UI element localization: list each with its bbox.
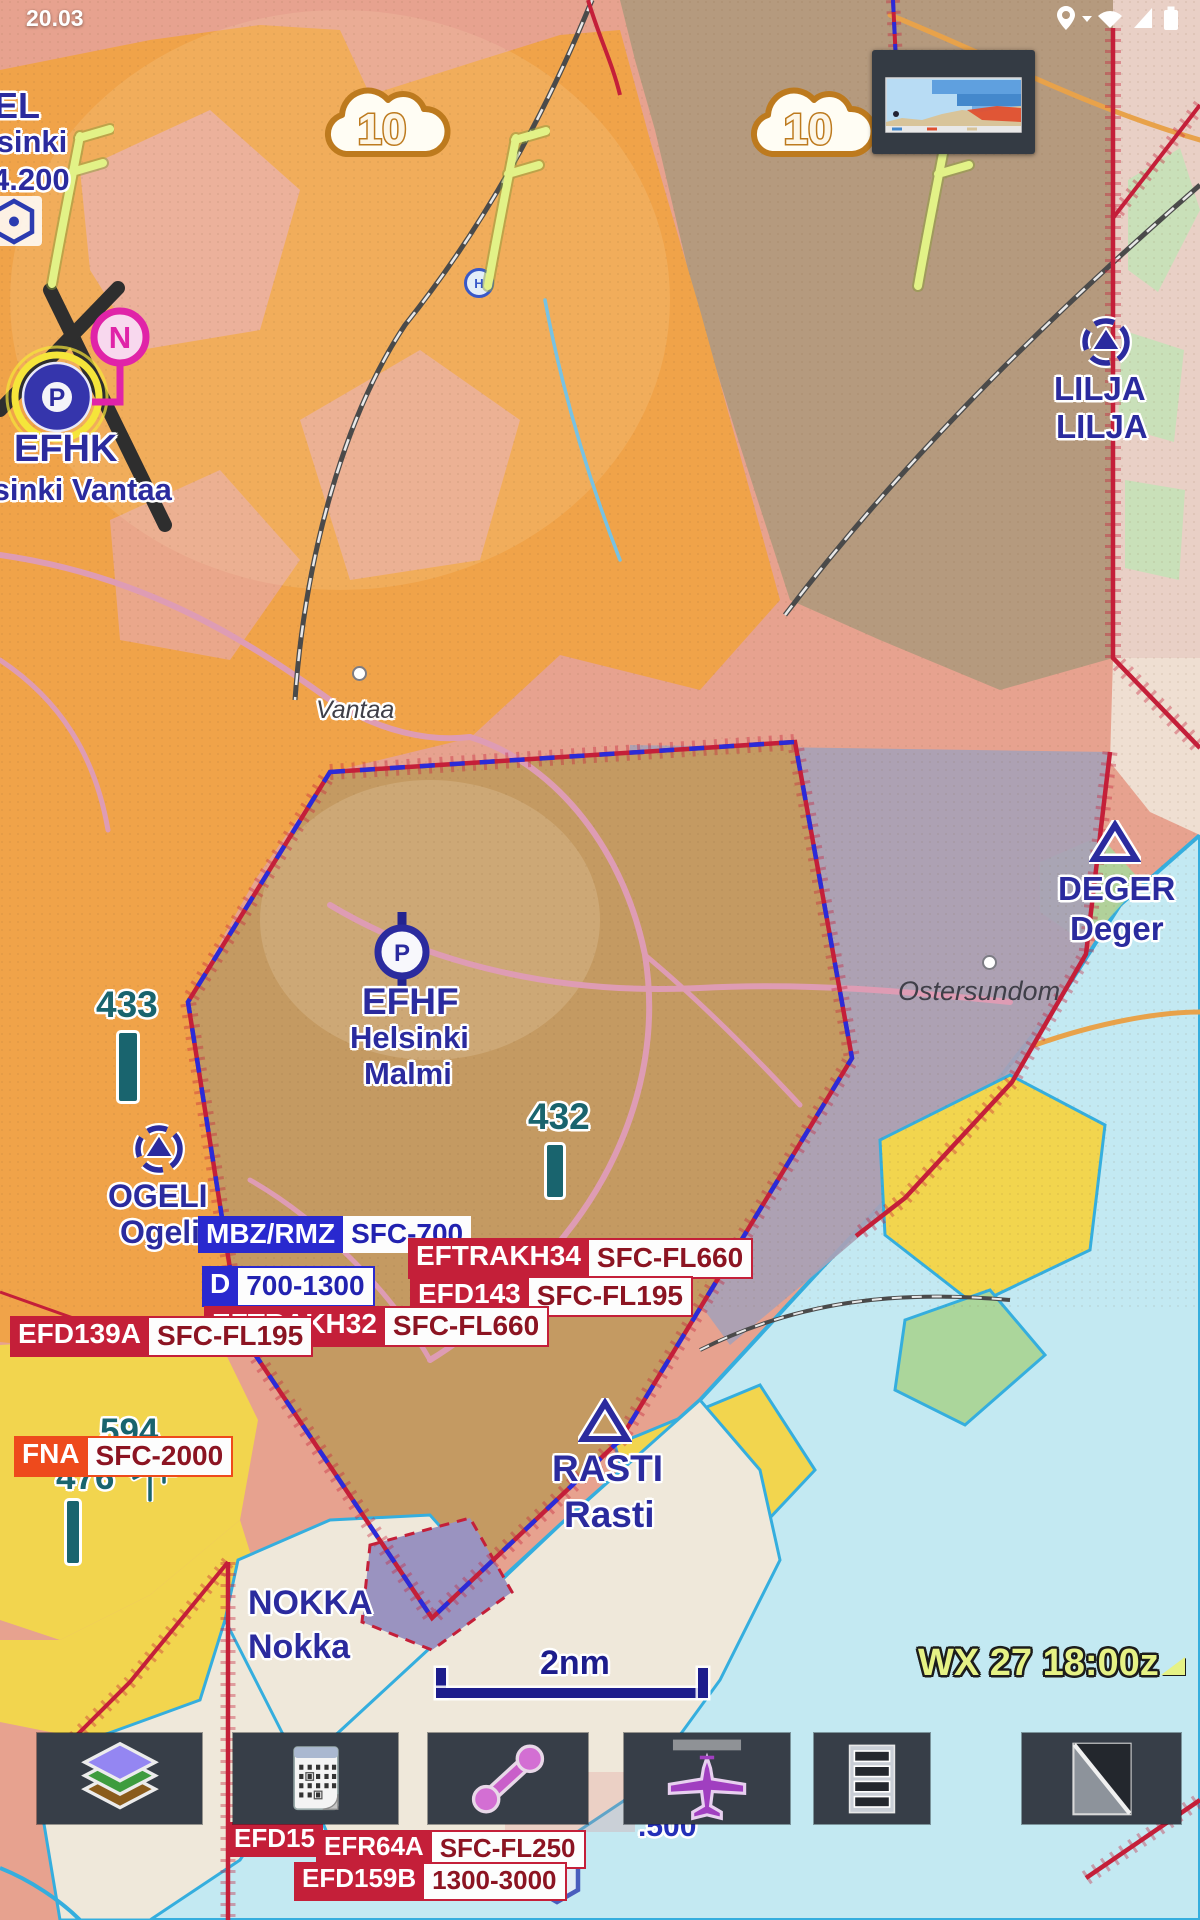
obstacle-mast-icon	[64, 1498, 82, 1566]
scale-label: 2nm	[540, 1644, 610, 1683]
efhk-airport-symbol[interactable]: P N	[0, 260, 260, 555]
airspace-limits: 700-1300	[238, 1266, 374, 1307]
waypoint-lilja-symbol[interactable]	[1079, 315, 1133, 374]
airspace-label-eftrakh34[interactable]: EFTRAKH34 SFC-FL660	[408, 1238, 753, 1279]
obstacle-elevation: 432	[528, 1098, 590, 1135]
airspace-label-d[interactable]: D 700-1300	[202, 1266, 375, 1307]
efhk-name-label: lsinki Vantaa	[0, 474, 172, 505]
location-icon	[1057, 6, 1075, 30]
waypoint-ogeli-symbol[interactable]	[132, 1122, 186, 1181]
waypoint-rasti-symbol[interactable]	[578, 1398, 632, 1449]
altitude-profile-inset[interactable]	[872, 50, 1035, 154]
signal-icon	[1134, 8, 1152, 28]
battery-icon	[1164, 10, 1178, 30]
wx-time-banner[interactable]: WX 27 18:00z	[918, 1642, 1185, 1685]
efhf-code-label: EFHF	[362, 983, 459, 1020]
airspace-name: D	[202, 1266, 238, 1307]
partial-label-line2: lsinki	[0, 126, 67, 157]
beacon-letter: N	[109, 320, 131, 355]
airspace-limits: SFC-FL195	[529, 1276, 693, 1317]
airspace-limits: SFC-2000	[88, 1436, 234, 1477]
app-screen: 20.03 10 10	[0, 0, 1200, 1920]
airspace-label-efd15[interactable]: EFD15	[226, 1822, 323, 1857]
waypoint-deger-alt: Deger	[1070, 912, 1164, 945]
layers-button[interactable]	[37, 1733, 202, 1824]
wind-barb	[458, 120, 550, 297]
airspace-limits: SFC-FL660	[385, 1306, 549, 1347]
obstacle-mast-icon	[544, 1142, 566, 1200]
caret-down-icon	[1082, 16, 1092, 22]
waypoint-deger-name: DEGER	[1058, 872, 1175, 905]
town-dot	[982, 955, 997, 970]
airspace-label-efd159b[interactable]: EFD159B 1300-3000	[294, 1862, 567, 1901]
airspace-limits: SFC-FL195	[149, 1316, 313, 1357]
layers-icon	[75, 1737, 165, 1821]
partial-label-line1: EL	[0, 88, 40, 124]
list-icon	[832, 1737, 912, 1821]
obstacle-mast-icon	[116, 1030, 140, 1104]
waypoint-rasti-alt: Rasti	[564, 1496, 654, 1533]
aircraft-button[interactable]	[624, 1733, 790, 1824]
route-button[interactable]	[428, 1733, 588, 1824]
status-icons	[1054, 3, 1192, 38]
airspace-label-efd139a[interactable]: EFD139A SFC-FL195	[10, 1316, 313, 1357]
partial-label-freq: 4.200	[0, 164, 70, 195]
profile-thumbnail	[872, 50, 1035, 154]
wx-resize-icon	[1161, 1657, 1185, 1675]
cloud-ceiling-left: 10	[312, 72, 452, 173]
waypoint-deger-symbol[interactable]	[1089, 820, 1141, 869]
obstacle-elevation: 433	[96, 986, 158, 1023]
town-dot	[352, 666, 367, 681]
airspace-name: EFD139A	[10, 1316, 149, 1357]
aircraft-icon	[647, 1736, 767, 1822]
waypoint-lilja-name: LILJA	[1054, 372, 1146, 405]
waypoint-ogeli-alt: Ogeli	[120, 1216, 200, 1248]
waypoint-nokka-name: NOKKA	[248, 1586, 373, 1620]
waypoint-lilja-alt: LILJA	[1056, 410, 1148, 443]
efhf-name2-label: Malmi	[364, 1058, 452, 1089]
status-bar: 20.03	[0, 0, 1200, 36]
airspace-name: EFTRAKH34	[408, 1238, 589, 1279]
town-ostersundom: Ostersundom	[898, 978, 1060, 1005]
airport-p-letter: P	[49, 384, 66, 412]
calendar-icon	[271, 1737, 361, 1821]
airspace-name: FNA	[14, 1436, 88, 1477]
scale-line	[436, 1688, 708, 1698]
wifi-icon	[1098, 11, 1122, 28]
terrain-corner-button[interactable]	[1022, 1733, 1181, 1824]
efhf-name1-label: Helsinki	[350, 1022, 469, 1053]
airport-p-letter: P	[394, 940, 410, 967]
waypoint-ogeli-name: OGELI	[108, 1180, 208, 1212]
status-time: 20.03	[26, 5, 84, 32]
waypoint-rasti-name: RASTI	[552, 1450, 663, 1487]
wx-text: WX 27 18:00z	[918, 1642, 1159, 1684]
airspace-name: EFD159B	[294, 1862, 424, 1901]
airspace-name: MBZ/RMZ	[198, 1216, 343, 1253]
route-icon	[463, 1737, 553, 1821]
town-vantaa: Vantaa	[316, 698, 394, 723]
airspace-limits: 1300-3000	[424, 1862, 566, 1901]
cloud-value: 10	[784, 105, 833, 154]
terrain-corner-icon	[1058, 1737, 1146, 1821]
airspace-limits: SFC-FL660	[589, 1238, 753, 1279]
waypoint-nokka-alt: Nokka	[248, 1630, 350, 1664]
airspace-label-fna[interactable]: FNA SFC-2000	[14, 1436, 233, 1477]
airspace-name: EFD15	[226, 1822, 323, 1857]
cloud-value: 10	[358, 105, 407, 154]
map-scale-bar: 2nm	[436, 1644, 712, 1704]
cloud-ceiling-right: 10	[738, 72, 878, 173]
efhk-code-label: EFHK	[14, 430, 117, 468]
altitude-bar	[673, 1739, 741, 1750]
list-button[interactable]	[814, 1733, 930, 1824]
calendar-button[interactable]	[233, 1733, 398, 1824]
scale-cap	[698, 1668, 708, 1698]
